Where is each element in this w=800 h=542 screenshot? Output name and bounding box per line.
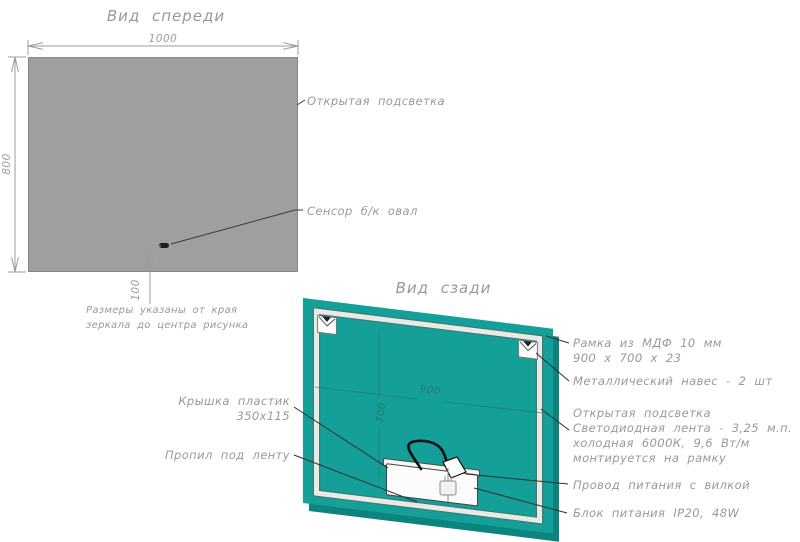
cover-label: Крышка пластик 350х115 [178, 394, 290, 424]
front-height-value: 800 [1, 153, 13, 175]
hanger-label: Металлический навес - 2 шт [573, 374, 772, 389]
frame-label: Рамка из МДФ 10 мм 900 х 700 х 23 [573, 336, 722, 366]
metal-hanger-right [518, 339, 538, 359]
front-view-title: Вид спереди [96, 7, 236, 25]
psu-label: Блок питания IP20, 48W [573, 506, 739, 521]
strip-cut-label: Пропил под ленту [165, 448, 290, 463]
backlight-spec-label: Открытая подсветка Светодиодная лента - … [573, 406, 792, 466]
frame-label-line2: 900 х 700 х 23 [573, 351, 722, 366]
sensor-offset-value: 100 [130, 279, 142, 301]
backlight-spec-line3: холодная 6000К, 9,6 Вт/м [573, 436, 792, 451]
front-note-line1: Размеры указаны от края [86, 303, 248, 318]
backlight-spec-line1: Открытая подсветка [573, 406, 792, 421]
front-width-value: 1000 [149, 33, 178, 45]
front-sensor-label: Сенсор б/к овал [307, 204, 418, 219]
front-note: Размеры указаны от края зеркала до центр… [86, 303, 248, 333]
cover-label-line1: Крышка пластик [178, 394, 290, 409]
backlight-spec-line4: монтируется на рамку [573, 451, 792, 466]
cover-label-line2: 350х115 [178, 409, 290, 424]
front-note-line2: зеркала до центра рисунка [86, 318, 248, 333]
technical-drawing-page: Вид спереди Открытая подсветка Сенсор б/… [0, 0, 800, 542]
hanger-icon [317, 315, 337, 335]
metal-hanger-left [317, 315, 337, 335]
mirror-front-face [28, 57, 298, 272]
power-cord-label: Провод питания с вилкой [573, 478, 750, 493]
front-backlight-leader-line [297, 100, 305, 105]
hanger-icon [518, 339, 538, 359]
front-backlight-label: Открытая подсветка [307, 94, 445, 109]
mirror-back-panel [303, 298, 553, 534]
backlight-spec-line2: Светодиодная лента - 3,25 м.п. [573, 421, 792, 436]
frame-label-line1: Рамка из МДФ 10 мм [573, 336, 722, 351]
front-width-dimension [28, 40, 298, 55]
front-height-dimension [8, 57, 26, 272]
back-view-title: Вид сзади [366, 279, 521, 297]
